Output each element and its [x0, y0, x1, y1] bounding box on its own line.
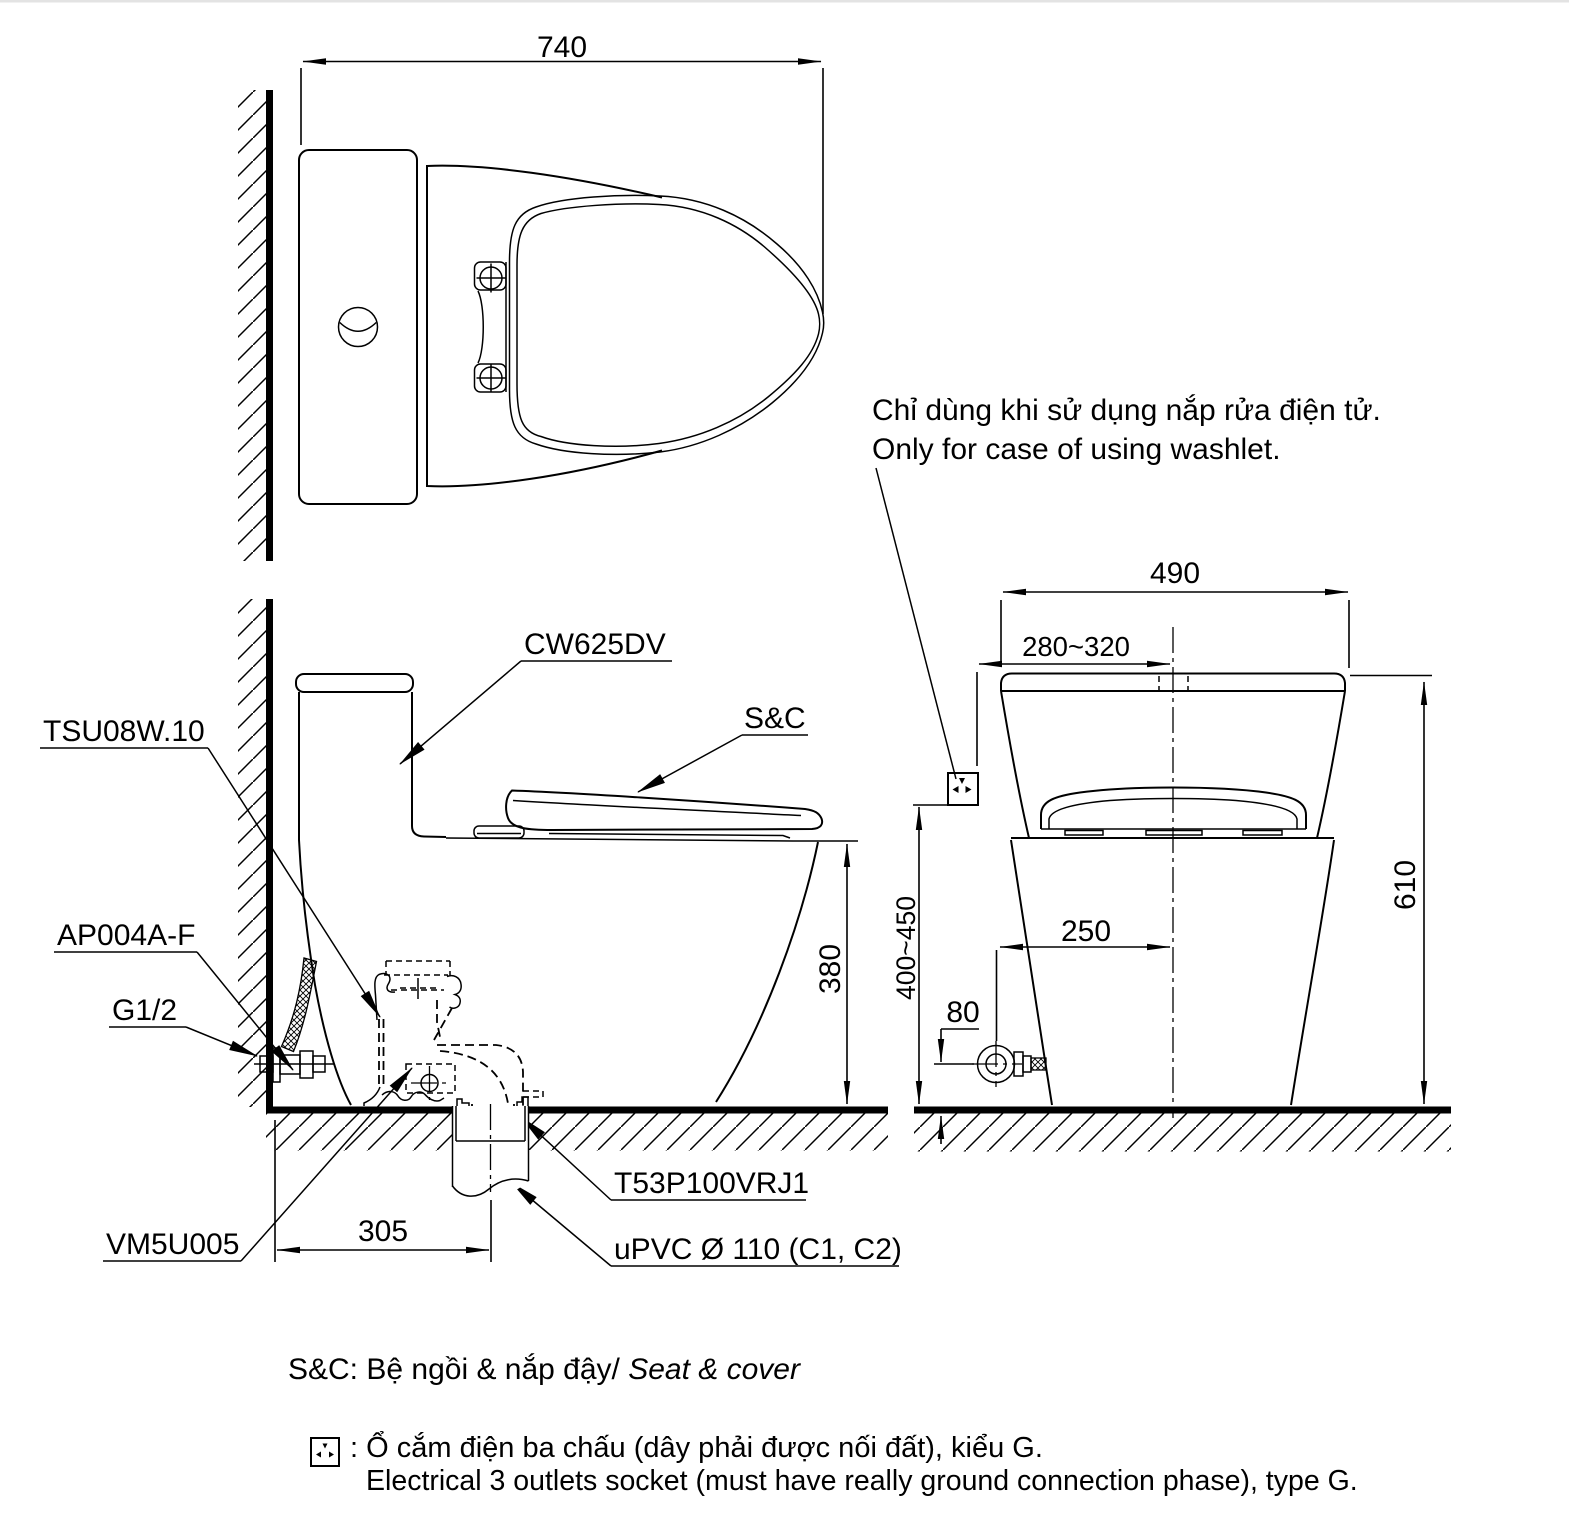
- svg-text:VM5U005: VM5U005: [106, 1228, 239, 1261]
- svg-text:AP004A-F: AP004A-F: [57, 919, 195, 952]
- svg-text:G1/2: G1/2: [112, 994, 177, 1027]
- svg-text:uPVC Ø 110 (C1, C2): uPVC Ø 110 (C1, C2): [614, 1233, 902, 1266]
- svg-text:Chỉ dùng khi sử dụng nắp rửa đ: Chỉ dùng khi sử dụng nắp rửa điện tử.: [872, 394, 1381, 427]
- svg-text:: Ổ cắm điện ba chấu (dây phải: : Ổ cắm điện ba chấu (dây phải được nối …: [350, 1430, 1043, 1464]
- svg-text:610: 610: [1389, 860, 1422, 910]
- svg-text:280~320: 280~320: [1022, 631, 1130, 662]
- svg-text:400~450: 400~450: [891, 896, 921, 1000]
- svg-text:T53P100VRJ1: T53P100VRJ1: [614, 1167, 809, 1200]
- svg-text:490: 490: [1150, 557, 1200, 590]
- svg-text:Electrical 3 outlets socket (m: Electrical 3 outlets socket (must have r…: [366, 1465, 1358, 1497]
- svg-text:S&C: S&C: [744, 702, 806, 735]
- svg-text:250: 250: [1061, 915, 1111, 948]
- svg-text:740: 740: [537, 31, 587, 64]
- svg-text:80: 80: [946, 996, 979, 1029]
- svg-text:380: 380: [814, 944, 847, 994]
- svg-text:Only for case of using washlet: Only for case of using washlet.: [872, 433, 1281, 466]
- svg-text:305: 305: [358, 1215, 408, 1248]
- svg-text:S&C: Bệ ngồi & nắp đậy/ Seat &: S&C: Bệ ngồi & nắp đậy/ Seat & cover: [288, 1353, 801, 1386]
- svg-text:TSU08W.10: TSU08W.10: [43, 715, 205, 748]
- svg-text:CW625DV: CW625DV: [524, 628, 666, 661]
